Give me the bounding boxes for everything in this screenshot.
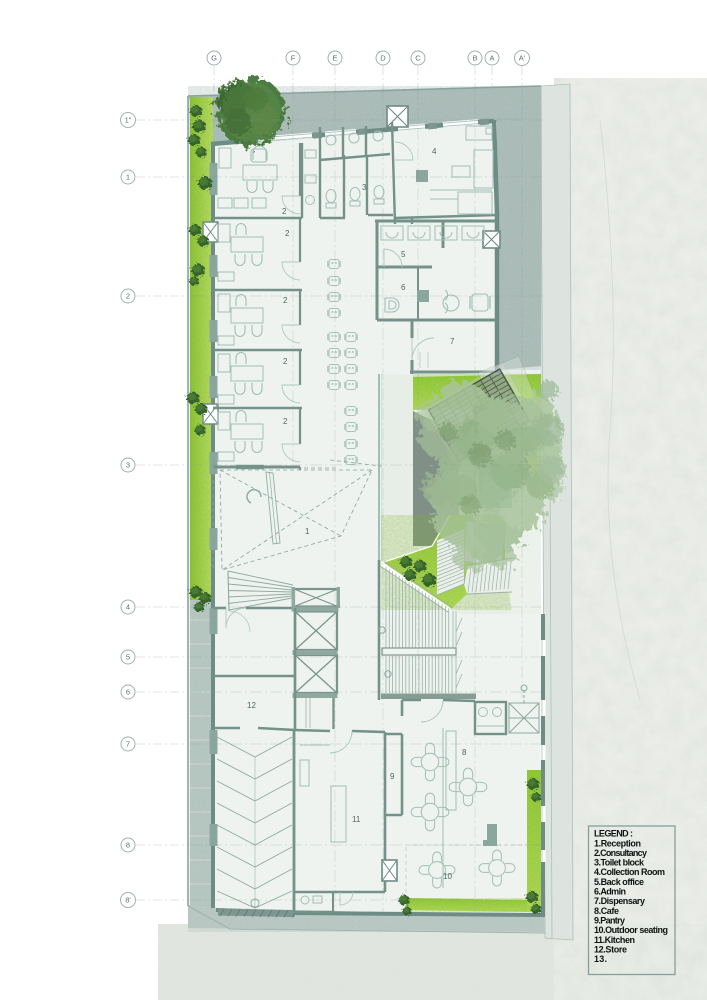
svg-text:4: 4 bbox=[432, 147, 437, 156]
svg-text:3: 3 bbox=[126, 461, 130, 470]
svg-text:8: 8 bbox=[462, 748, 467, 757]
svg-text:G: G bbox=[211, 54, 217, 63]
svg-text:2: 2 bbox=[283, 296, 288, 305]
svg-text:8.Cafe: 8.Cafe bbox=[594, 906, 619, 916]
svg-text:A: A bbox=[489, 54, 494, 63]
svg-text:2: 2 bbox=[283, 357, 288, 366]
svg-text:6: 6 bbox=[126, 688, 130, 697]
svg-text:7: 7 bbox=[450, 337, 455, 346]
svg-text:11: 11 bbox=[352, 815, 361, 824]
svg-text:1: 1 bbox=[305, 527, 310, 536]
svg-text:8: 8 bbox=[126, 841, 130, 850]
svg-text:D: D bbox=[380, 54, 386, 63]
svg-text:2: 2 bbox=[283, 417, 288, 426]
svg-text:1.Reception: 1.Reception bbox=[594, 838, 641, 848]
svg-text:C: C bbox=[415, 54, 421, 63]
svg-text:6: 6 bbox=[401, 283, 406, 292]
svg-text:2.Consultancy: 2.Consultancy bbox=[594, 848, 647, 858]
svg-text:6.Admin: 6.Admin bbox=[594, 887, 626, 897]
svg-text:4.Collection Room: 4.Collection Room bbox=[594, 867, 665, 877]
svg-text:1": 1" bbox=[125, 116, 132, 125]
svg-text:3: 3 bbox=[362, 183, 367, 192]
svg-text:11.Kitchen: 11.Kitchen bbox=[594, 935, 635, 945]
svg-text:1: 1 bbox=[126, 173, 130, 182]
svg-text:E: E bbox=[332, 54, 337, 63]
svg-text:3.Toilet block: 3.Toilet block bbox=[594, 858, 645, 868]
svg-text:2: 2 bbox=[285, 229, 290, 238]
svg-text:12.Store: 12.Store bbox=[594, 944, 627, 954]
svg-text:5: 5 bbox=[401, 250, 406, 259]
svg-text:8': 8' bbox=[125, 896, 131, 905]
svg-text:F: F bbox=[291, 54, 296, 63]
svg-text:A': A' bbox=[519, 54, 526, 63]
svg-text:7: 7 bbox=[126, 740, 130, 749]
svg-text:12: 12 bbox=[247, 701, 256, 710]
svg-text:5: 5 bbox=[126, 653, 130, 662]
svg-text:2: 2 bbox=[126, 292, 130, 301]
svg-text:9.Pantry: 9.Pantry bbox=[594, 916, 625, 926]
svg-text:B: B bbox=[472, 54, 477, 63]
svg-text:10: 10 bbox=[443, 872, 452, 881]
svg-text:9: 9 bbox=[390, 772, 395, 781]
svg-text:5.Back office: 5.Back office bbox=[594, 877, 644, 887]
svg-text:7.Dispensary: 7.Dispensary bbox=[594, 896, 645, 906]
svg-text:2: 2 bbox=[282, 207, 287, 216]
svg-text:LEGEND :: LEGEND : bbox=[594, 829, 633, 839]
svg-text:4: 4 bbox=[126, 603, 130, 612]
svg-text:10.Outdoor seating: 10.Outdoor seating bbox=[594, 925, 668, 935]
svg-text:13.: 13. bbox=[594, 954, 607, 964]
